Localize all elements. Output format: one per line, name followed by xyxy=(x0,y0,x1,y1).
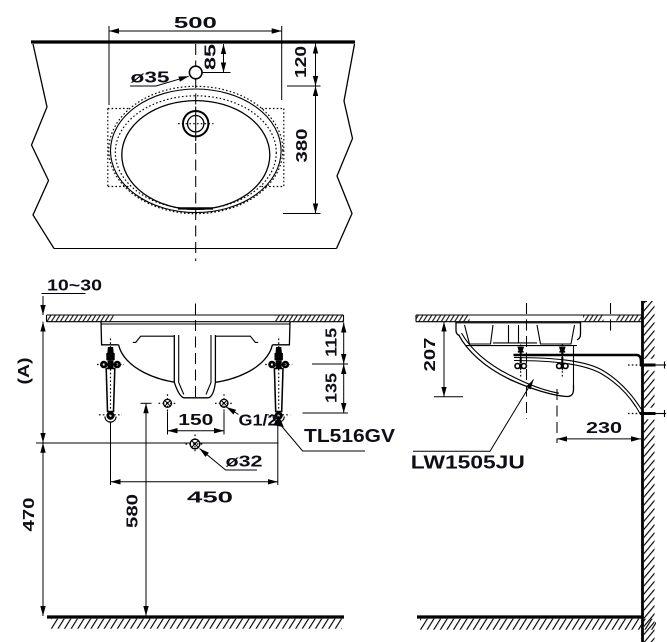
svg-text:135: 135 xyxy=(324,373,341,403)
svg-text:10~30: 10~30 xyxy=(47,278,102,295)
svg-text:450: 450 xyxy=(187,490,233,507)
svg-text:207: 207 xyxy=(422,337,439,371)
svg-text:150: 150 xyxy=(178,412,213,429)
svg-text:(A): (A) xyxy=(16,358,33,385)
svg-text:TL516GV: TL516GV xyxy=(304,426,395,446)
svg-text:LW1505JU: LW1505JU xyxy=(411,452,525,473)
svg-text:380: 380 xyxy=(294,128,311,162)
svg-text:85: 85 xyxy=(203,44,220,70)
svg-text:230: 230 xyxy=(586,420,622,437)
svg-text:G1/2: G1/2 xyxy=(239,412,278,429)
svg-text:580: 580 xyxy=(125,494,142,528)
svg-text:115: 115 xyxy=(324,327,341,356)
svg-text:ø32: ø32 xyxy=(226,453,263,470)
svg-text:120: 120 xyxy=(293,46,310,78)
svg-text:470: 470 xyxy=(21,497,38,531)
svg-text:500: 500 xyxy=(174,15,217,32)
